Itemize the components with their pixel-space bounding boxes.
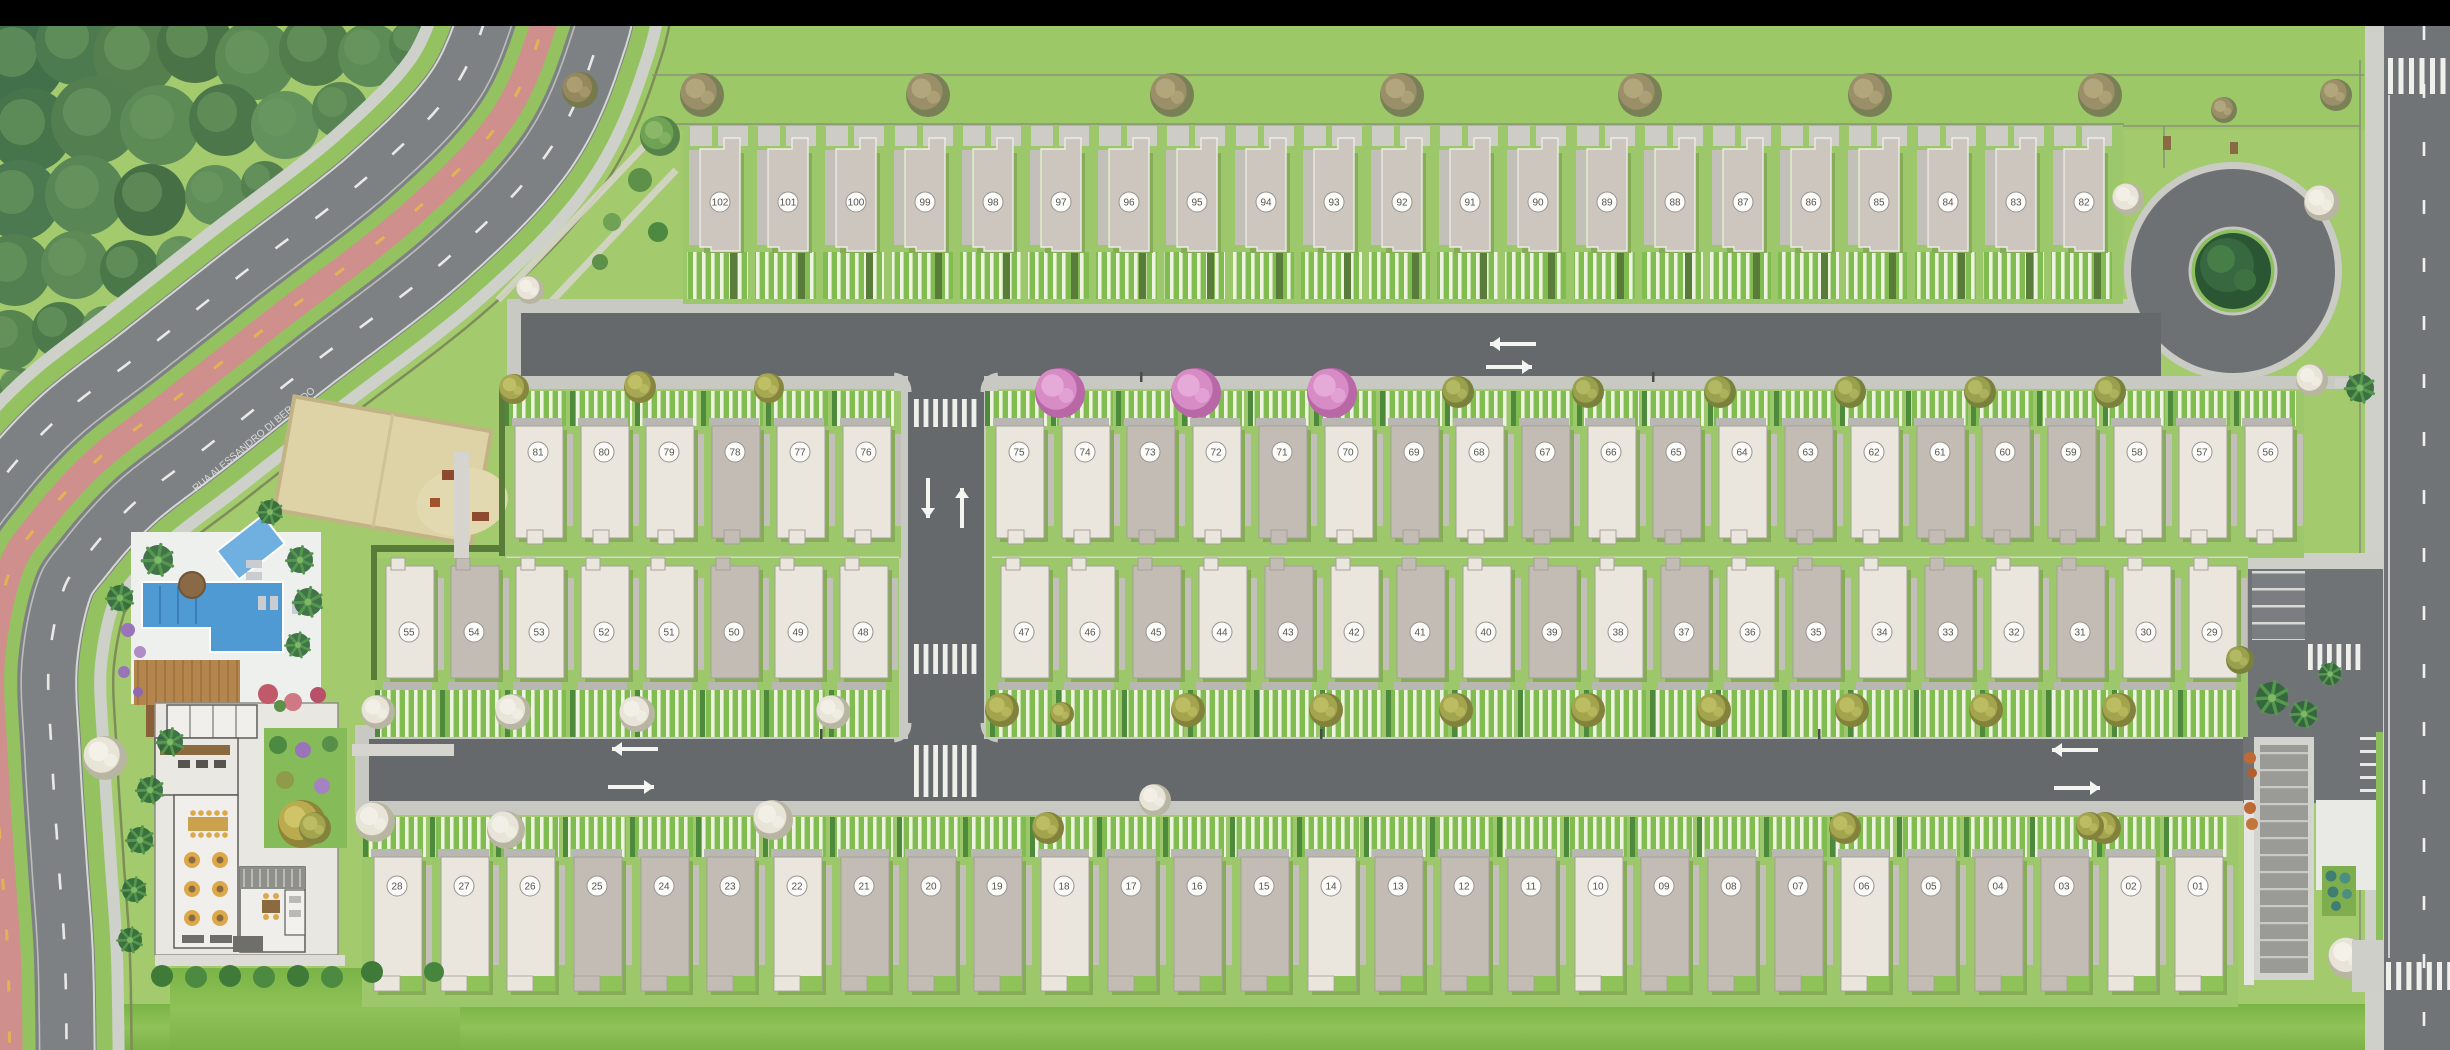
svg-text:02: 02 <box>2125 882 2137 893</box>
svg-text:93: 93 <box>1328 198 1340 209</box>
svg-text:56: 56 <box>2262 448 2274 459</box>
svg-text:37: 37 <box>1678 628 1690 639</box>
svg-text:41: 41 <box>1414 628 1426 639</box>
svg-text:92: 92 <box>1396 198 1408 209</box>
svg-text:47: 47 <box>1018 628 1030 639</box>
svg-text:79: 79 <box>663 448 675 459</box>
svg-text:11: 11 <box>1526 882 1537 893</box>
svg-text:12: 12 <box>1458 882 1470 893</box>
svg-text:38: 38 <box>1612 628 1624 639</box>
svg-text:45: 45 <box>1150 628 1162 639</box>
svg-text:99: 99 <box>919 198 931 209</box>
svg-text:70: 70 <box>1342 448 1354 459</box>
svg-text:102: 102 <box>712 198 729 209</box>
svg-text:75: 75 <box>1013 448 1025 459</box>
svg-text:55: 55 <box>403 628 415 639</box>
svg-text:78: 78 <box>729 448 741 459</box>
svg-text:40: 40 <box>1480 628 1492 639</box>
svg-text:90: 90 <box>1532 198 1544 209</box>
svg-text:03: 03 <box>2058 882 2070 893</box>
svg-text:25: 25 <box>591 882 603 893</box>
svg-text:73: 73 <box>1144 448 1156 459</box>
svg-text:66: 66 <box>1605 448 1617 459</box>
svg-text:77: 77 <box>794 448 806 459</box>
svg-text:23: 23 <box>724 882 736 893</box>
svg-text:18: 18 <box>1058 882 1070 893</box>
svg-text:62: 62 <box>1868 448 1880 459</box>
svg-text:20: 20 <box>925 882 937 893</box>
svg-text:17: 17 <box>1125 882 1137 893</box>
svg-text:82: 82 <box>2078 198 2090 209</box>
svg-text:63: 63 <box>1802 448 1814 459</box>
svg-text:80: 80 <box>598 448 610 459</box>
svg-text:09: 09 <box>1658 882 1670 893</box>
svg-text:87: 87 <box>1737 198 1749 209</box>
svg-text:100: 100 <box>848 198 865 209</box>
svg-text:48: 48 <box>857 628 869 639</box>
svg-text:95: 95 <box>1191 198 1203 209</box>
svg-text:19: 19 <box>991 882 1003 893</box>
svg-text:64: 64 <box>1736 448 1748 459</box>
svg-text:54: 54 <box>468 628 480 639</box>
svg-text:24: 24 <box>658 882 670 893</box>
svg-text:67: 67 <box>1539 448 1551 459</box>
svg-text:91: 91 <box>1464 198 1476 209</box>
svg-text:59: 59 <box>2065 448 2077 459</box>
svg-text:28: 28 <box>391 882 403 893</box>
svg-text:98: 98 <box>987 198 999 209</box>
svg-text:27: 27 <box>458 882 470 893</box>
svg-text:86: 86 <box>1805 198 1817 209</box>
svg-text:13: 13 <box>1392 882 1404 893</box>
svg-text:72: 72 <box>1210 448 1222 459</box>
svg-text:15: 15 <box>1258 882 1270 893</box>
svg-text:84: 84 <box>1942 198 1954 209</box>
svg-text:97: 97 <box>1055 198 1067 209</box>
svg-text:06: 06 <box>1858 882 1870 893</box>
svg-text:04: 04 <box>1992 882 2004 893</box>
svg-text:52: 52 <box>598 628 610 639</box>
svg-text:05: 05 <box>1925 882 1937 893</box>
svg-text:49: 49 <box>792 628 804 639</box>
svg-text:14: 14 <box>1325 882 1337 893</box>
svg-text:34: 34 <box>1876 628 1888 639</box>
svg-text:88: 88 <box>1669 198 1681 209</box>
svg-text:65: 65 <box>1670 448 1682 459</box>
svg-text:51: 51 <box>663 628 675 639</box>
svg-text:89: 89 <box>1601 198 1613 209</box>
svg-text:07: 07 <box>1792 882 1804 893</box>
svg-text:57: 57 <box>2196 448 2208 459</box>
svg-text:61: 61 <box>1934 448 1946 459</box>
svg-text:30: 30 <box>2140 628 2152 639</box>
svg-text:26: 26 <box>524 882 536 893</box>
svg-text:58: 58 <box>2131 448 2143 459</box>
svg-text:01: 01 <box>2192 882 2204 893</box>
svg-text:69: 69 <box>1408 448 1420 459</box>
svg-text:10: 10 <box>1592 882 1604 893</box>
svg-text:42: 42 <box>1348 628 1360 639</box>
svg-text:16: 16 <box>1191 882 1203 893</box>
svg-text:60: 60 <box>1999 448 2011 459</box>
svg-text:44: 44 <box>1216 628 1228 639</box>
svg-text:39: 39 <box>1546 628 1558 639</box>
svg-text:76: 76 <box>860 448 872 459</box>
svg-text:96: 96 <box>1123 198 1135 209</box>
svg-text:94: 94 <box>1260 198 1272 209</box>
svg-text:31: 31 <box>2074 628 2086 639</box>
svg-text:101: 101 <box>780 198 797 209</box>
svg-text:71: 71 <box>1276 448 1288 459</box>
svg-text:81: 81 <box>532 448 544 459</box>
svg-text:21: 21 <box>858 882 870 893</box>
svg-text:46: 46 <box>1084 628 1096 639</box>
svg-text:43: 43 <box>1282 628 1294 639</box>
svg-text:35: 35 <box>1810 628 1822 639</box>
svg-text:68: 68 <box>1473 448 1485 459</box>
svg-text:29: 29 <box>2206 628 2218 639</box>
svg-text:33: 33 <box>1942 628 1954 639</box>
svg-text:08: 08 <box>1725 882 1737 893</box>
svg-text:50: 50 <box>728 628 740 639</box>
svg-text:32: 32 <box>2008 628 2020 639</box>
svg-text:83: 83 <box>2010 198 2022 209</box>
svg-text:74: 74 <box>1079 448 1091 459</box>
svg-text:85: 85 <box>1873 198 1885 209</box>
svg-text:22: 22 <box>791 882 803 893</box>
svg-text:53: 53 <box>533 628 545 639</box>
svg-text:36: 36 <box>1744 628 1756 639</box>
